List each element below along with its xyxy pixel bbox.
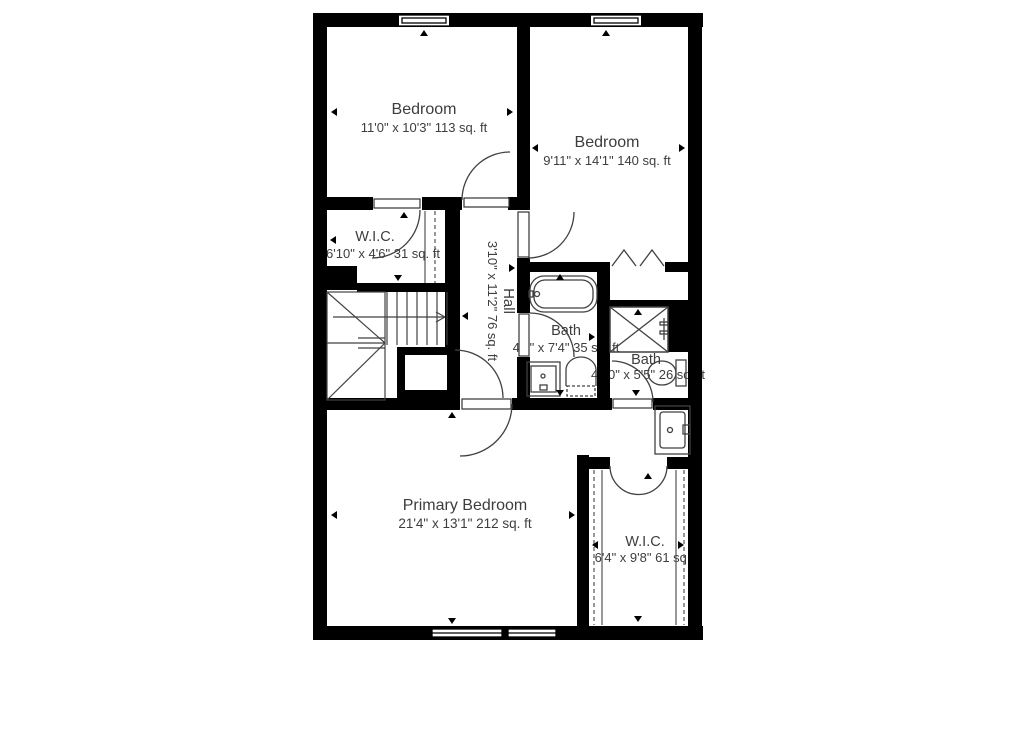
room-name: Primary Bedroom bbox=[335, 496, 595, 516]
door-arc-primary-bedroom bbox=[460, 404, 512, 456]
room-label-bedroom-2: Bedroom 9'11" x 14'1" 140 sq. ft bbox=[477, 133, 737, 169]
stair-winder-box bbox=[327, 292, 385, 400]
staircase bbox=[327, 292, 451, 400]
room-dimensions: 21'4" x 13'1" 212 sq. ft bbox=[335, 516, 595, 533]
room-dimensions-wic-1: 6'10" x 4'6" 31 sq. ft bbox=[313, 246, 453, 262]
under-stair-closet bbox=[401, 351, 451, 394]
door-leaf-wic-1 bbox=[374, 199, 420, 208]
bathtub bbox=[529, 276, 597, 312]
room-dimensions: 3'10" x 11'2" 76 sq. ft bbox=[485, 216, 500, 386]
room-name: Hall bbox=[500, 216, 517, 386]
stair-direction-arrow bbox=[333, 312, 445, 322]
room-name: Bath bbox=[516, 322, 616, 340]
door-leaf-primary-bedroom bbox=[462, 399, 511, 409]
window-top-left bbox=[395, 13, 453, 27]
room-dimensions: 9'11" x 14'1" 140 sq. ft bbox=[477, 153, 737, 169]
window-top-right bbox=[587, 13, 645, 27]
door-leaf-bedroom-2 bbox=[518, 212, 529, 257]
room-name: Bedroom bbox=[294, 100, 554, 120]
door-leaf-bath-2 bbox=[613, 399, 652, 408]
room-dimensions-wic-2: 6'4" x 9'8" 61 sq. ft bbox=[528, 550, 768, 566]
room-label-bath-1: Bath bbox=[516, 322, 616, 340]
door-arc-bedroom-2 bbox=[528, 212, 574, 258]
vanity-sink bbox=[655, 406, 690, 454]
room-name: Bedroom bbox=[477, 133, 737, 153]
shower-valve bbox=[660, 318, 668, 340]
room-name: W.I.C. bbox=[545, 533, 745, 551]
room-label-wic-1: W.I.C. bbox=[275, 228, 475, 246]
room-label-bedroom-1: Bedroom 11'0" x 10'3" 113 sq. ft bbox=[294, 100, 554, 136]
bath1-sink bbox=[527, 362, 560, 396]
door-arc-wic-2 bbox=[610, 466, 667, 495]
window-bottom-double bbox=[428, 627, 560, 639]
floor-plan-canvas: Bedroom 11'0" x 10'3" 113 sq. ft Bedroom… bbox=[0, 0, 1024, 738]
room-label-wic-2: W.I.C. bbox=[545, 533, 745, 551]
room-name: W.I.C. bbox=[275, 228, 475, 246]
door-leaf-bedroom-1 bbox=[464, 198, 509, 207]
room-label-primary-bedroom: Primary Bedroom 21'4" x 13'1" 212 sq. ft bbox=[335, 496, 595, 533]
room-dimensions-bath-2: 4'10" x 5'5" 26 sq. ft bbox=[583, 367, 713, 383]
room-label-hall: Hall 3'10" x 11'2" 76 sq. ft bbox=[461, 216, 517, 386]
bifold-closet-doors bbox=[612, 250, 664, 266]
